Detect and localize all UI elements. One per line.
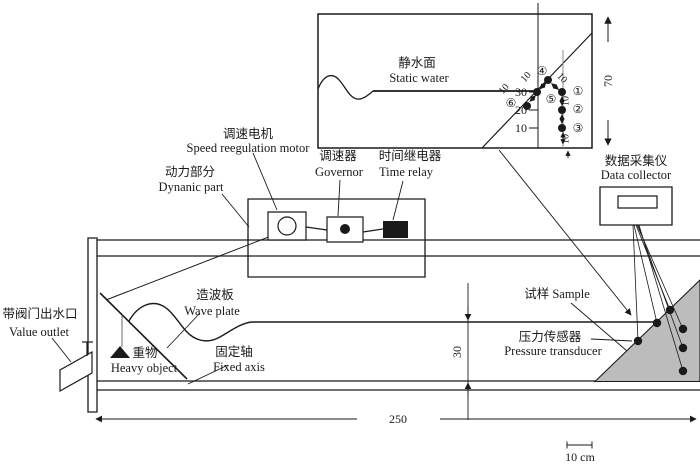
dim-30-label: 30 [450,346,464,358]
scale-bar-label: 10 cm [565,450,595,464]
data-collector-display [618,196,657,208]
motor-governor-link [306,227,327,230]
transducer-dot [666,306,674,314]
length-250-dimension: 250 [96,412,696,426]
fixed-axis-label-en: Fixed axis [213,360,265,374]
fixed-axis-label-zh: 固定轴 [215,344,253,359]
governor-relay-link [363,229,383,232]
spacing-10-vertical-upper: 10 [561,96,572,106]
inset-tick-10: 10 [515,121,527,135]
pressure-transducer-label-en: Pressure transducer [504,344,602,358]
data-collector-label-zh: 数据采集仪 [605,153,668,168]
point-6-dot [523,102,531,110]
point-1-label: ① [573,84,584,98]
point-5-dot [533,88,541,96]
dynamic-part-label-zh: 动力部分 [165,164,215,179]
drive-rod [106,231,284,300]
transducer-dot [634,337,642,345]
time-relay-label-zh: 时间继电器 [379,149,442,163]
data-collector-device [600,187,672,225]
point-1-dot [558,88,566,96]
dim-250-label: 250 [389,412,407,426]
leader-dynamic-part [222,194,249,227]
point-2-dot [558,106,566,114]
heavy-object-weight [110,346,130,358]
speed-motor-label-zh: 调速电机 [223,127,274,141]
sample-label: 试样 Sample [524,286,590,301]
transducer-dot [653,319,661,327]
transducer-dot [679,325,687,333]
static-water-label-zh: 静水面 [398,56,436,70]
heavy-object-label-zh: 重物 [132,345,157,360]
experiment-diagram: 30 20 10 ④ ⑤ ⑥ ① ② ③ 10 10 10 [0,0,700,466]
point-6-label: ⑥ [506,96,517,110]
data-collector-label-en: Data collector [601,168,672,182]
time-relay-label-en: Time relay [379,165,434,179]
leader-valve-outlet [52,338,71,362]
valve-outlet-label-zh: 带阀门出水口 [2,306,77,321]
flume-structure [88,238,700,412]
outlet-pipe [60,352,92,391]
valve-outlet-label-en: Value outlet [9,325,70,339]
wave-plate-label-zh: 造波板 [196,288,234,302]
transducer-dot [679,367,687,375]
governor-symbol [340,224,350,234]
point-2-label: ② [573,102,584,116]
scale-bar: 10 cm [565,442,595,465]
dynamic-part-label-en: Dynanic part [159,180,224,194]
point-5-label: ⑤ [546,92,557,106]
leader-time-relay [393,181,403,220]
wave-plate-label-en: Wave plate [184,304,240,318]
wave-flume-schematic: 30 20 10 ④ ⑤ ⑥ ① ② ③ 10 10 10 [0,0,700,466]
transducer-dot [679,344,687,352]
dim-70-label: 70 [601,75,615,87]
leader-wave-plate [167,313,200,348]
inset-70-dimension: 70 [601,17,615,145]
governor-label-en: Governor [315,165,364,179]
spacing-10-vertical-lower: 10 [561,134,572,144]
time-relay-box [383,221,408,238]
inset-detail-view: 30 20 10 ④ ⑤ ⑥ ① ② ③ 10 10 10 [318,3,615,158]
pressure-transducer-label-zh: 压力传感器 [519,329,582,344]
speed-motor-label-en: Speed reegulation motor [187,141,311,155]
leader-governor [338,180,340,216]
leader-speed-motor [253,153,277,210]
leader-pressure-transducer [591,339,632,341]
static-water-label-en: Static water [389,71,449,85]
heavy-object-label-en: Heavy object [111,361,178,375]
governor-label-zh: 调速器 [319,149,357,163]
point-3-label: ③ [573,121,584,135]
control-unit [248,199,425,277]
component-labels: 调速电机 Speed reegulation motor 调速器 Governo… [2,127,672,375]
inset-tick-30: 30 [515,85,527,99]
motor-symbol [278,217,296,235]
flume-left-wall [88,238,97,412]
point-4-label: ④ [537,64,548,78]
depth-30-dimension: 30 [450,283,468,420]
point-3-dot [558,124,566,132]
